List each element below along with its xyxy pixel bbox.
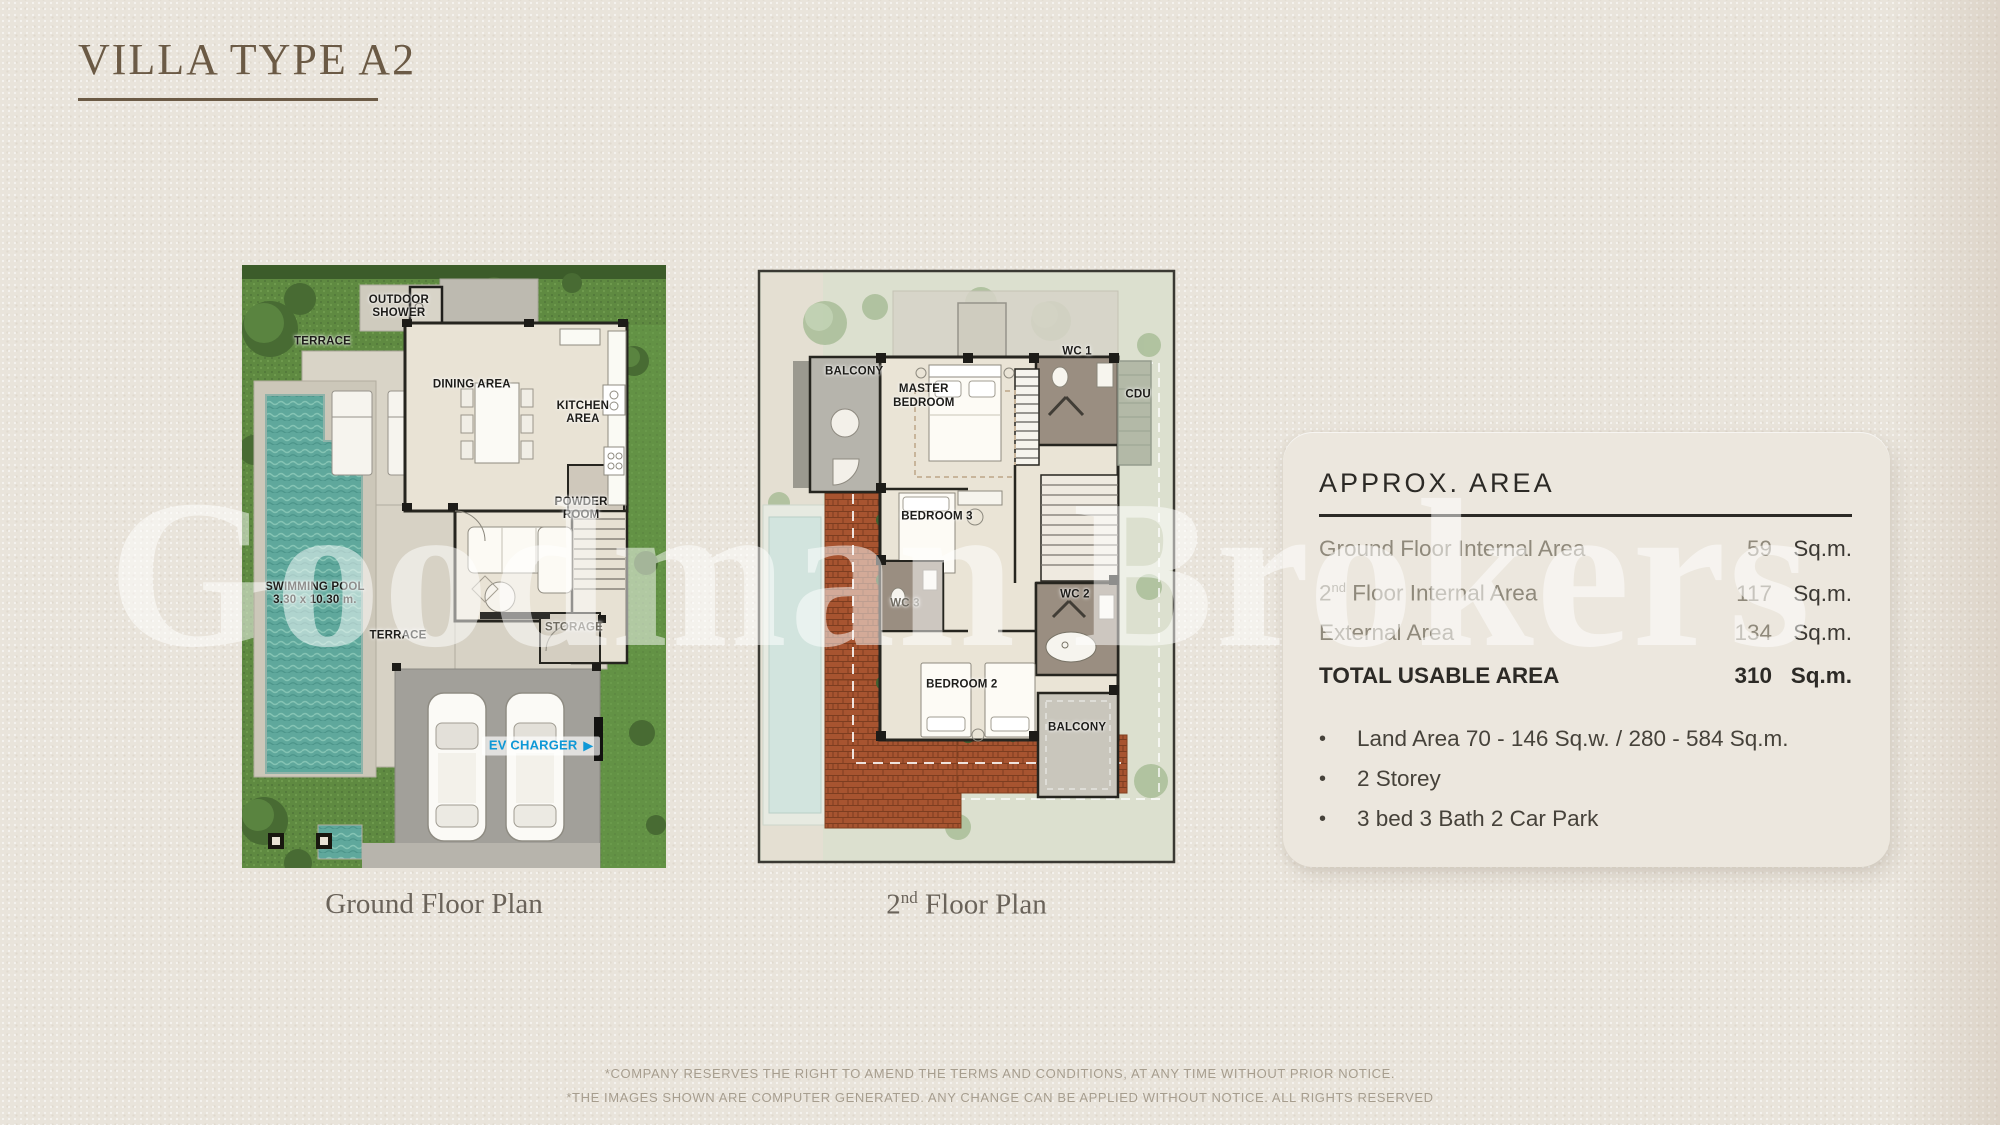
total-label: TOTAL USABLE AREA — [1319, 656, 1716, 695]
label-kitchen-area: KITCHEN AREA — [552, 400, 614, 426]
label-storage: STORAGE — [545, 621, 603, 634]
label-terrace-bottom: TERRACE — [370, 629, 427, 642]
area-row-value: 117 — [1716, 574, 1772, 613]
area-row-unit: Sq.m. — [1772, 613, 1852, 652]
label-wc3: WC 3 — [890, 597, 920, 610]
label-wc2: WC 2 — [1060, 588, 1090, 601]
ground-plan-caption: Ground Floor Plan — [242, 888, 626, 921]
footer-disclaimer: *COMPANY RESERVES THE RIGHT TO AMEND THE… — [0, 1066, 2000, 1105]
wc1-basin — [1097, 363, 1113, 387]
wc3-basin — [923, 570, 937, 590]
footer-line-2: *THE IMAGES SHOWN ARE COMPUTER GENERATED… — [0, 1090, 2000, 1105]
bullet-text: 2 Storey — [1357, 759, 1441, 799]
spec-bullets: • Land Area 70 - 146 Sq.w. / 280 - 584 S… — [1319, 719, 1852, 839]
pool-below-water — [769, 517, 821, 813]
ground-floor-plan: OUTDOOR SHOWER TERRACE DINING AREA KITCH… — [242, 265, 666, 868]
bullet-icon: • — [1319, 719, 1357, 759]
upper-staircase — [1041, 475, 1118, 581]
row-2-rest: Floor Internal Area — [1346, 581, 1537, 606]
label-balcony-bottom: BALCONY — [1048, 721, 1106, 734]
label-bedroom3: BEDROOM 3 — [901, 510, 972, 523]
area-row-label: External Area — [1319, 613, 1716, 652]
label-terrace-top: TERRACE — [294, 336, 351, 349]
driveway-apron — [362, 843, 600, 868]
heading-rule — [1319, 514, 1852, 517]
label-bedroom2: BEDROOM 2 — [926, 679, 997, 692]
label-outdoor-shower: OUTDOOR SHOWER — [361, 294, 437, 320]
area-row-unit: Sq.m. — [1772, 529, 1852, 568]
total-unit: Sq.m. — [1772, 656, 1852, 695]
area-row-ground: Ground Floor Internal Area 59 Sq.m. — [1319, 529, 1852, 568]
area-row-unit: Sq.m. — [1772, 574, 1852, 613]
label-ev-charger: EV CHARGER ▶ — [482, 737, 600, 756]
shower-below — [958, 303, 1006, 361]
label-swimming-pool: SWIMMING POOL 3.30 x 10.30 m. — [265, 581, 365, 607]
wc2-basin — [1099, 595, 1114, 619]
master-bed — [915, 365, 1015, 477]
bullet-icon: • — [1319, 759, 1357, 799]
car-right — [506, 693, 564, 841]
ev-arrow-icon: ▶ — [584, 739, 593, 753]
ground-floor-plan-drawing — [242, 265, 666, 868]
bullet-text: 3 bed 3 Bath 2 Car Park — [1357, 799, 1598, 839]
garage-floor — [395, 669, 600, 868]
approx-area-panel: APPROX. AREA Ground Floor Internal Area … — [1283, 432, 1890, 867]
label-master-bedroom: MASTER BEDROOM — [882, 383, 966, 409]
cdu-strip — [1118, 361, 1151, 465]
dining-set — [461, 383, 533, 463]
second-floor-plan-drawing — [753, 265, 1180, 868]
wc2-tub — [1046, 632, 1096, 662]
area-row-value: 59 — [1716, 529, 1772, 568]
bullet-storey: • 2 Storey — [1319, 759, 1852, 799]
page-title: VILLA TYPE A2 — [78, 34, 416, 85]
label-dining-area: DINING AREA — [433, 378, 511, 391]
second-plan-caption: 2nd Floor Plan — [753, 888, 1180, 922]
caption-2-sup: nd — [901, 888, 918, 907]
bullet-land-area: • Land Area 70 - 146 Sq.w. / 280 - 584 S… — [1319, 719, 1852, 759]
area-row-label: 2nd Floor Internal Area — [1319, 568, 1716, 613]
caption-2-rest: Floor Plan — [918, 889, 1047, 921]
balcony-bottom-area — [1038, 693, 1118, 797]
balcony-basin — [831, 409, 859, 437]
label-balcony-top: BALCONY — [825, 365, 883, 378]
area-row-external: External Area 134 Sq.m. — [1319, 613, 1852, 652]
bullet-text: Land Area 70 - 146 Sq.w. / 280 - 584 Sq.… — [1357, 719, 1789, 759]
row-2-num: 2 — [1319, 581, 1332, 606]
bullet-icon: • — [1319, 799, 1357, 839]
row-2-sup: nd — [1332, 580, 1346, 595]
balcony-rail — [793, 361, 810, 488]
area-row-label: Ground Floor Internal Area — [1319, 529, 1716, 568]
footer-line-1: *COMPANY RESERVES THE RIGHT TO AMEND THE… — [0, 1066, 2000, 1081]
total-value: 310 — [1716, 656, 1772, 695]
wc1-toilet — [1052, 367, 1068, 387]
hedge-top — [242, 265, 666, 279]
pool-name: SWIMMING POOL — [265, 581, 365, 594]
caption-2-num: 2 — [886, 889, 901, 921]
master-closet — [1015, 369, 1039, 465]
ev-charger-text: EV CHARGER — [489, 739, 578, 754]
brochure-page: VILLA TYPE A2 — [0, 0, 2000, 1125]
area-row-value: 134 — [1716, 613, 1772, 652]
pool-size: 3.30 x 10.30 m. — [265, 594, 365, 607]
label-powder-room: POWDER ROOM — [551, 496, 611, 522]
area-row-second: 2nd Floor Internal Area 117 Sq.m. — [1319, 568, 1852, 613]
title-underline — [78, 98, 378, 101]
label-cdu: CDU — [1125, 389, 1151, 402]
area-panel-heading: APPROX. AREA — [1319, 468, 1852, 499]
car-left — [428, 693, 486, 841]
bullet-bed-bath: • 3 bed 3 Bath 2 Car Park — [1319, 799, 1852, 839]
area-row-total: TOTAL USABLE AREA 310 Sq.m. — [1319, 656, 1852, 695]
label-wc1: WC 1 — [1062, 345, 1092, 358]
second-floor-plan: BALCONY MASTER BEDROOM WC 1 CDU BEDROOM … — [753, 265, 1180, 868]
